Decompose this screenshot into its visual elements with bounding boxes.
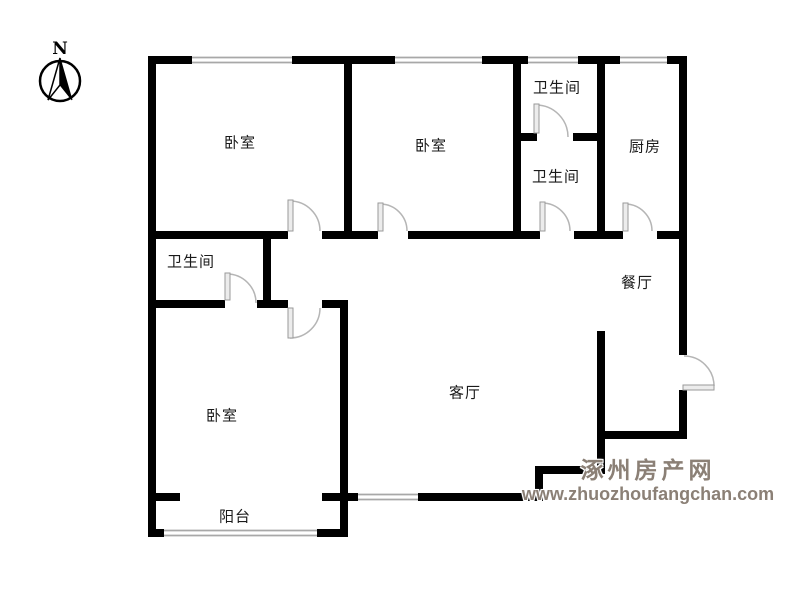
compass-north-label: N	[52, 39, 68, 59]
window-bathroom-top	[528, 56, 578, 64]
door-bedroom3	[288, 308, 320, 338]
wall-hall-seg4	[574, 231, 623, 239]
wall-bath-kitchen-divider	[597, 56, 605, 239]
wall-left-outer	[148, 56, 156, 537]
wall-bedrooms-divider	[344, 56, 352, 239]
wall-bathrooms-divider-right	[573, 133, 605, 141]
wall-bedroom3-top-seg3	[322, 300, 348, 308]
door-kitchen	[623, 203, 652, 231]
door-entry	[683, 356, 714, 390]
watermark: 涿州房产网 www.zhuozhoufangchan.com	[518, 458, 778, 505]
room-label-bathroom-top: 卫生间	[533, 77, 581, 98]
door-bathroom-middle	[540, 202, 570, 231]
floor-plan: N 卧室 卧室 卫生间 卫生间 厨房 餐厅 客厅 卫生间 卧室 阳台 涿州房产网…	[0, 0, 800, 600]
wall-bedroom3-right	[340, 300, 348, 537]
floor-plan-drawing	[0, 0, 800, 600]
window-balcony	[164, 529, 317, 537]
wall-right-outer-upper	[679, 56, 687, 355]
compass	[40, 58, 80, 101]
window-bedroom1	[192, 56, 292, 64]
wall-bedroom3-bottom-stub	[148, 493, 180, 501]
door-bedroom1	[288, 200, 320, 231]
door-bathroom-left	[225, 273, 256, 303]
room-label-bedroom-top-middle: 卧室	[415, 135, 447, 156]
wall-bathleft-right	[263, 231, 271, 308]
wall-hall-seg3	[408, 231, 540, 239]
room-label-bathroom-left: 卫生间	[167, 251, 215, 272]
room-label-bedroom-top-left: 卧室	[224, 132, 256, 153]
room-label-dining: 餐厅	[621, 272, 653, 293]
wall-step-vertical-a	[597, 331, 605, 474]
door-bedroom2	[378, 203, 407, 231]
window-living-bottom	[358, 493, 418, 501]
door-bathroom-top	[534, 104, 568, 137]
wall-bedroom2-bath-divider	[513, 56, 521, 239]
watermark-site-name: 涿州房产网	[518, 458, 778, 483]
room-label-bathroom-middle: 卫生间	[532, 166, 580, 187]
wall-dining-bottom	[597, 431, 687, 439]
wall-bathrooms-divider-left	[513, 133, 537, 141]
wall-hall-seg5	[657, 231, 687, 239]
watermark-url: www.zhuozhoufangchan.com	[518, 485, 778, 505]
wall-bedroom3-top-seg1	[148, 300, 225, 308]
room-label-kitchen: 厨房	[629, 136, 661, 157]
wall-hall-seg2	[322, 231, 378, 239]
room-label-balcony: 阳台	[219, 506, 251, 527]
wall-balcony-bottom-stub-left	[148, 529, 164, 537]
room-label-bedroom-bottom: 卧室	[206, 405, 238, 426]
wall-bedroom3-top-seg2	[257, 300, 288, 308]
window-kitchen	[620, 56, 667, 64]
window-bedroom2	[395, 56, 482, 64]
room-label-living: 客厅	[449, 382, 481, 403]
